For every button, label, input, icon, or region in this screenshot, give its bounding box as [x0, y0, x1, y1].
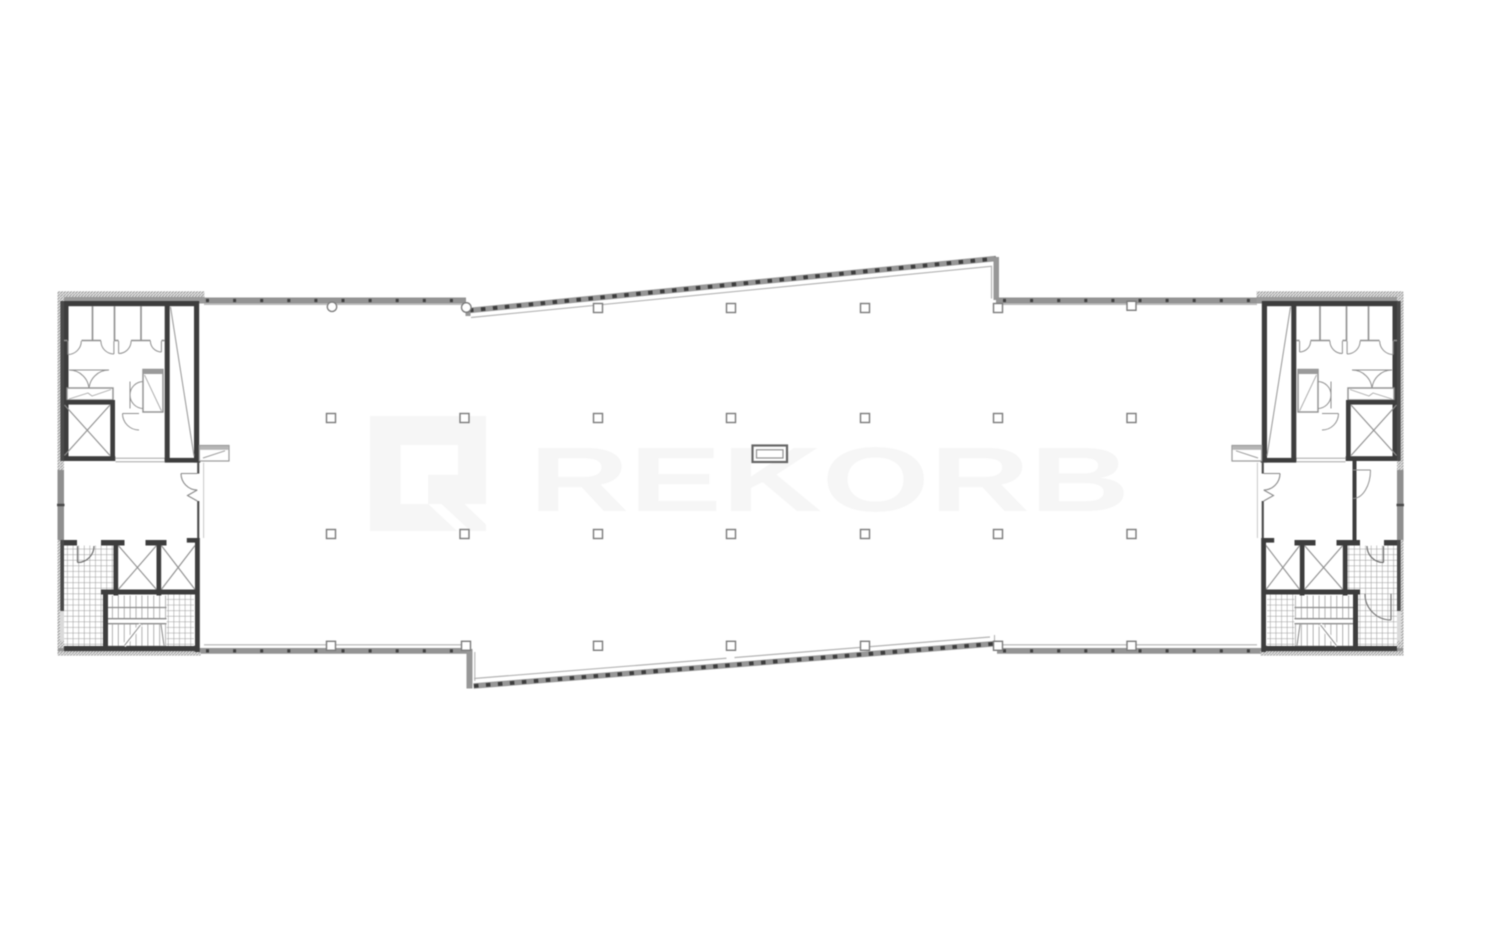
svg-text:REKORB: REKORB [529, 429, 1130, 531]
